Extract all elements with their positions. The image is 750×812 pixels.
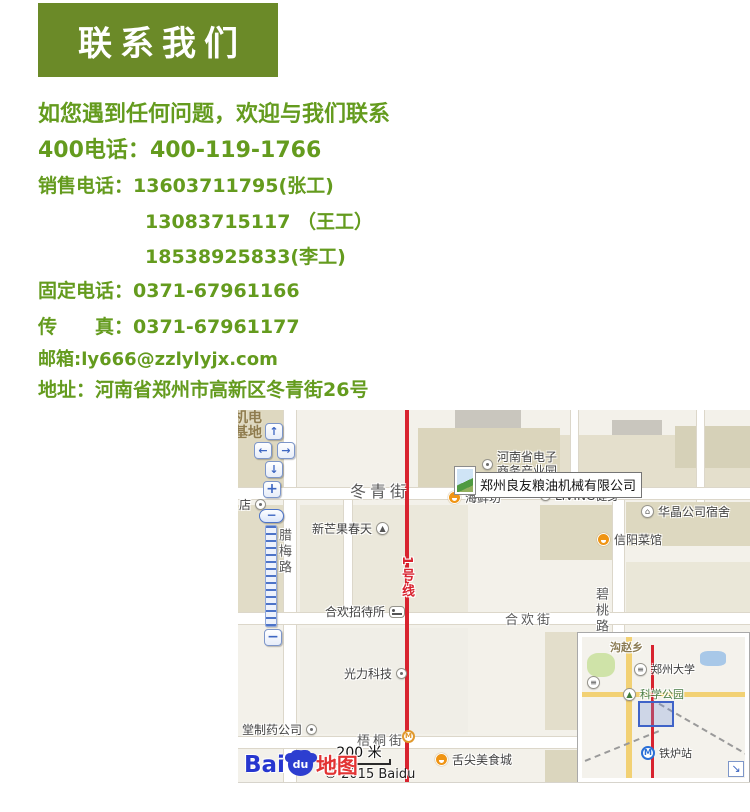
page-title-banner: 联系我们 [38,3,278,77]
road-minor [343,500,353,614]
minimap-kexue-park: ▲ 科学公园 [623,686,684,702]
poi-label: 店 [239,496,251,513]
poi-huajing: ⌂ 华晶公司宿舍 [641,503,730,520]
metro-line-1-label: 1号线 [397,556,416,600]
street-dongqing: 冬青街 [350,478,410,502]
contact-value: 400-119-1766 [150,138,321,163]
contact-value: ly666@zzlylyjx.com [81,349,278,370]
minimap-zhengzhou-univ: ≡ 郑州大学 [634,661,695,677]
company-photo-icon[interactable] [454,466,476,495]
contact-value: 0371-67961166 [133,280,300,302]
zoom-out-button[interactable]: − [264,629,282,646]
poi-label: 光力科技 [344,665,392,682]
street-bitao: 碧桃路 [591,587,610,635]
contact-label: 400电话： [38,138,150,163]
poi-dot-icon [306,724,317,735]
contact-value: 13603711795(张工) [133,175,334,197]
area-jidianjidi: 机电基地 [238,411,266,441]
contact-label: 销售电话： [38,175,133,197]
baidu-paw-icon: du [288,754,313,776]
university-icon: ≡ [587,676,600,689]
poi-label: 华晶公司宿舍 [658,503,730,520]
minimap-water-area [700,651,726,666]
university-icon: ≡ [634,663,647,676]
contact-value: 0371-67961177 [133,316,300,338]
minimap-park-area [587,653,615,677]
baidu-map[interactable]: 1号线 冬青街 腊梅路 碧桃路 合欢街 梧桐街 M 机电基地 店 河南省电子商务… [238,410,750,783]
poi-label: 堂制药公司 [242,721,302,738]
poi-label: 郑州大学 [651,661,695,677]
poi-dot-icon [482,459,493,470]
poi-label: 舌尖美食城 [452,751,512,768]
contact-line-sales3: 18538925833(李工) [145,242,346,269]
minimap-collapse-button[interactable]: ↘ [728,761,744,777]
contact-line-400: 400电话：400-119-1766 [38,132,321,164]
poi-shejian: 舌尖美食城 [435,751,512,768]
contact-line-email: 邮箱:ly666@zzlylyjx.com [38,345,278,371]
baidu-maps-logo[interactable]: Bai du 地图 [244,750,358,780]
minimap-area-gouzhaoxiang: 沟赵乡 [610,639,643,655]
baidu-logo-text: Bai [244,752,285,778]
poi-label: 合欢招待所 [325,603,385,620]
poi-xinmangguo: 新芒果春天 ▲ [312,520,389,537]
park-tree-icon: ▲ [623,688,636,701]
poi-hehuan-hotel: 合欢招待所 [325,603,405,620]
street-hehuan: 合欢街 [505,609,553,628]
pan-up-button[interactable]: ↑ [265,423,283,440]
metro-icon: M [402,730,415,743]
company-tooltip[interactable]: 郑州良友粮油机械有限公司 [474,472,642,498]
building-icon: ⌂ [641,505,654,518]
pan-left-button[interactable]: ← [254,442,272,459]
road-hehuan [238,612,750,625]
zoom-slider-handle[interactable]: − [259,509,284,523]
map-block [675,426,750,468]
mall-icon: ▲ [376,522,389,535]
contact-line-sales: 销售电话：13603711795(张工) [38,171,334,198]
poi-label: 信阳菜馆 [614,531,662,548]
contact-label: 固定电话： [38,280,133,302]
contact-line-landline: 固定电话：0371-67961166 [38,276,300,303]
minimap-canvas[interactable]: 沟赵乡 ≡ ≡ 郑州大学 ▲ 科学公园 M 铁炉站 ↘ [582,637,745,778]
poi-label: 铁炉站 [659,745,692,761]
minimap-tielu-station: M 铁炉站 [641,745,692,761]
food-icon [435,753,448,766]
contact-value: 河南省郑州市高新区冬青街26号 [95,379,368,401]
poi-dot-icon [396,668,407,679]
minimap-univ-icon-west: ≡ [587,676,600,689]
poi-xinyang: 信阳菜馆 [597,531,662,548]
overview-minimap[interactable]: 沟赵乡 ≡ ≡ 郑州大学 ▲ 科学公园 M 铁炉站 ↘ [577,632,750,783]
baidu-ditu-text: 地图 [316,750,358,780]
map-block [626,562,750,617]
poi-pharma: 堂制药公司 [242,721,317,738]
minimap-viewport-rect[interactable] [638,701,674,727]
hotel-bed-icon [389,606,405,618]
contact-value: 13083715117 （王工） [145,211,373,233]
contact-line-fax: 传 真：0371-67961177 [38,312,300,339]
poi-label: 新芒果春天 [312,520,372,537]
page-title: 联系我们 [70,16,246,65]
contact-label: 邮箱: [38,349,81,370]
contact-value: 18538925833(李工) [145,246,346,268]
minimap-road-yellow-v [626,637,632,778]
pan-right-button[interactable]: → [277,442,295,459]
contact-label: 地址： [38,379,95,401]
food-icon [597,533,610,546]
metro-station-wutong: M [402,730,415,743]
zoom-slider-track[interactable] [265,525,277,627]
pan-down-button[interactable]: ↓ [265,461,283,478]
zoom-in-button[interactable]: + [263,481,281,498]
poi-label: 科学公园 [640,686,684,702]
metro-icon: M [641,746,655,760]
contact-label: 传 真： [38,316,133,338]
contact-line-address: 地址：河南省郑州市高新区冬青街26号 [38,375,368,402]
poi-guangli: 光力科技 [344,665,407,682]
contact-line-sales2: 13083715117 （王工） [145,207,373,234]
contact-intro: 如您遇到任何问题，欢迎与我们联系 [38,96,390,128]
contact-page: 联系我们 如您遇到任何问题，欢迎与我们联系 400电话：400-119-1766… [0,0,750,812]
